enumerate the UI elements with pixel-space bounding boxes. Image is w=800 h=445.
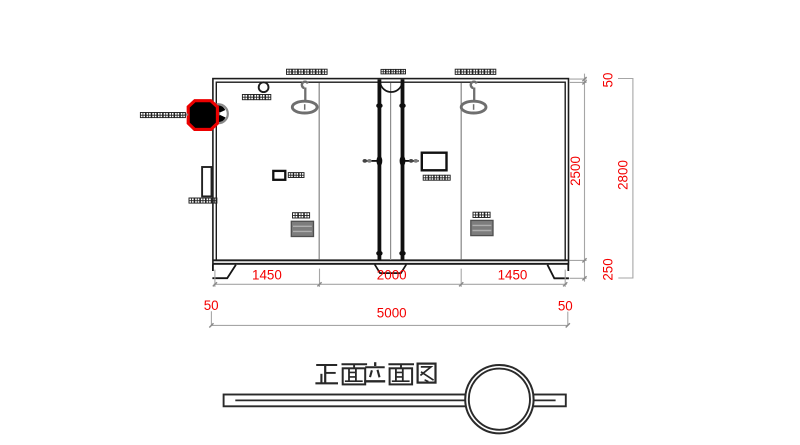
svg-text:2000: 2000 [377, 268, 407, 283]
svg-text:50: 50 [204, 298, 219, 313]
svg-text:2500: 2500 [568, 156, 583, 186]
svg-text:1450: 1450 [252, 268, 282, 283]
svg-text:1450: 1450 [498, 267, 528, 282]
svg-text:5000: 5000 [377, 306, 407, 321]
svg-text:2800: 2800 [616, 160, 631, 190]
svg-text:50: 50 [601, 73, 616, 88]
svg-text:50: 50 [558, 298, 573, 313]
svg-text:250: 250 [600, 258, 615, 280]
